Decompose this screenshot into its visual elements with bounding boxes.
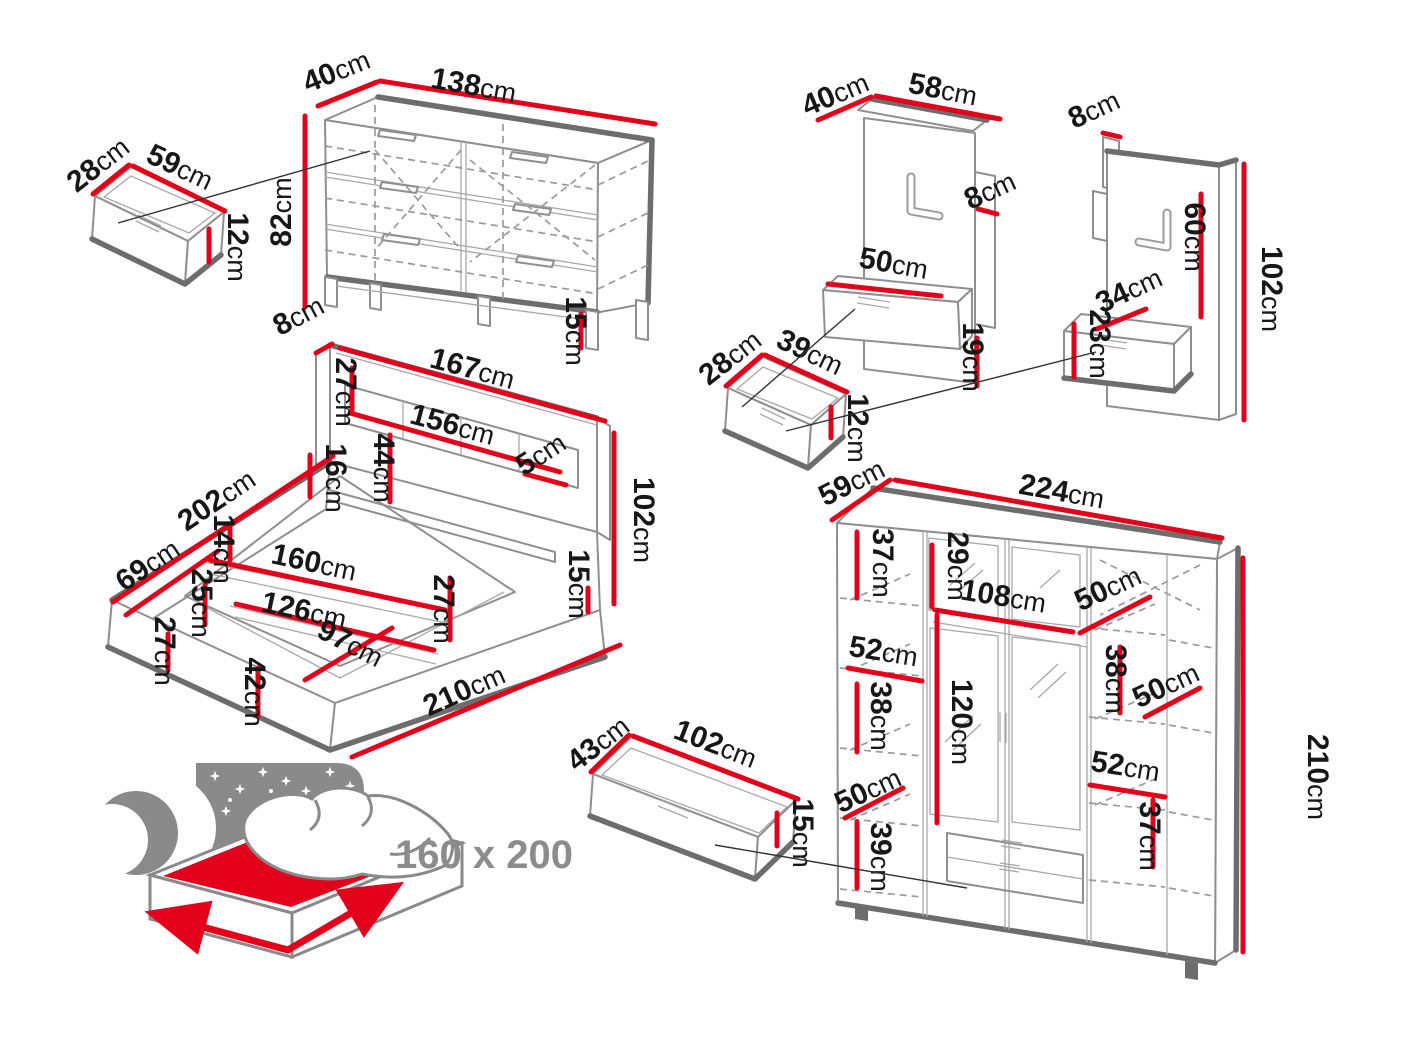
wardrobe-drawer: 43cm 102cm 15cm xyxy=(561,709,819,879)
dim-chest-leg: 15cm xyxy=(559,296,592,365)
dim-bed-inner-depth: 97cm xyxy=(312,613,389,674)
dim-bed-rail: 25cm xyxy=(185,568,218,637)
dim-panel-right-panel-height: 60cm xyxy=(1178,202,1211,271)
dim-wardrobe-gap-right: 38cm xyxy=(1099,644,1132,713)
bed-size-label: 160 x 200 xyxy=(395,833,573,877)
bed-size-icon: 160 x 200 xyxy=(76,763,573,957)
dim-panel-right-batten: 8cm xyxy=(1063,83,1125,135)
chest-drawer: 28cm 59cm 12cm xyxy=(61,130,254,284)
dim-panel-left-lower-gap: 19cm xyxy=(956,322,989,391)
nightstand-drawer: 28cm 39cm 12cm xyxy=(693,323,874,468)
dim-wardrobe-width: 224cm xyxy=(1016,468,1106,515)
diagram-canvas: 40cm 138cm 82cm 15cm 28cm 59cm 12cm xyxy=(0,0,1408,1056)
dim-bed-height: 102cm xyxy=(627,477,660,563)
dim-bed-headboard-box: 27cm xyxy=(329,357,362,426)
wall-panel-nightstand-left: 40cm 58cm 8cm 50cm 19cm xyxy=(797,66,1021,392)
dim-chest-drawer-height: 12cm xyxy=(221,212,254,281)
dim-wardrobe-gap-lower-right: 37cm xyxy=(1133,801,1166,870)
dim-bed-front: 27cm xyxy=(427,574,460,643)
dim-chest-height: 82cm xyxy=(265,177,298,246)
dim-wardrobe-gap-left: 38cm xyxy=(864,681,897,750)
dim-bed-ledge: 16cm xyxy=(319,443,352,512)
dim-bed-foot: 42cm xyxy=(238,657,271,726)
dim-bed-base: 15cm xyxy=(562,549,595,618)
dim-bed-corner: 27cm xyxy=(148,616,181,685)
dim-bed-headboard-depth: 8cm xyxy=(268,289,330,343)
wall-panel-nightstand-right: 8cm 60cm 102cm 34cm 23cm xyxy=(1063,83,1288,420)
dim-panel-right-drawer-height: 23cm xyxy=(1083,309,1116,378)
furniture-dimension-diagram: 40cm 138cm 82cm 15cm 28cm 59cm 12cm xyxy=(0,0,1408,1056)
dim-panel-right-height: 102cm xyxy=(1255,246,1288,332)
dim-chest-width: 138cm xyxy=(428,62,518,109)
wardrobe: 59cm 224cm 37cm 29cm 108cm 50cm 52cm 38c… xyxy=(813,452,1334,980)
dim-wardrobe-top-gap-left: 37cm xyxy=(866,528,899,597)
dim-wardrobe-door-height: 120cm xyxy=(945,679,978,765)
dim-chest-depth: 40cm xyxy=(298,43,375,100)
dim-panel-drawer-height: 12cm xyxy=(841,393,874,462)
dim-wardrobe-height: 210cm xyxy=(1301,734,1334,820)
dim-wardrobe-gap-lower-left: 39cm xyxy=(864,822,897,891)
dim-bed-shelf-drop: 44cm xyxy=(367,433,400,502)
